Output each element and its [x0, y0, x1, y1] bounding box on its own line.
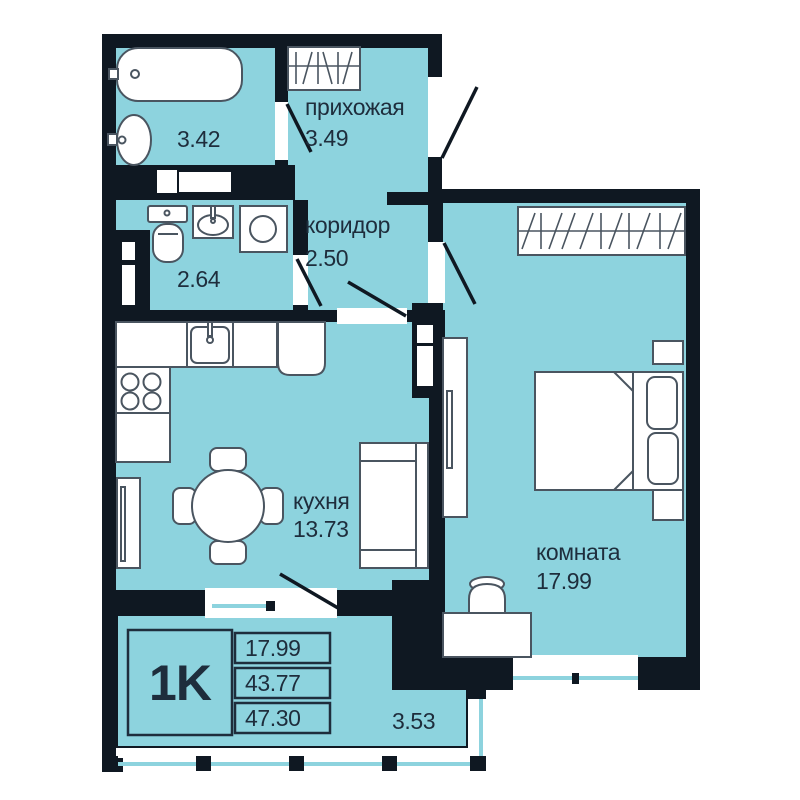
- kitchen-radiator: [117, 478, 140, 568]
- bedroom-area: 17.99: [536, 568, 592, 594]
- chair: [210, 541, 246, 564]
- toilet: [148, 206, 187, 262]
- bedroom-label: комната: [536, 539, 621, 565]
- tv-cabinet: [443, 338, 467, 517]
- hallway-wardrobe: [288, 47, 360, 90]
- legend-type: 1K: [149, 655, 212, 711]
- chair: [210, 448, 246, 471]
- pillow: [647, 377, 677, 429]
- entrance-opening: [428, 77, 442, 157]
- corridor-label: коридор: [305, 212, 390, 238]
- hallway-area: 3.49: [305, 125, 348, 151]
- entrance-door-leaf: [442, 87, 477, 158]
- stove: [116, 367, 170, 413]
- bathtub: [109, 48, 242, 101]
- legend-living-area: 43.77: [245, 670, 301, 696]
- fridge: [278, 322, 325, 375]
- nightstand: [653, 490, 683, 520]
- kitchen-area: 13.73: [293, 516, 349, 542]
- bathroom-door-opening: [275, 102, 288, 160]
- corridor-area: 2.50: [305, 245, 348, 271]
- bed: [535, 372, 683, 490]
- bathroom-area: 3.42: [177, 126, 220, 152]
- desk-chair-seat: [469, 584, 505, 613]
- sofa: [360, 443, 428, 568]
- floor-plan-page: прихожая 3.49 3.42 2.64 коридор 2.50 кух…: [0, 0, 800, 800]
- pillow: [648, 433, 678, 484]
- legend-room-area: 17.99: [245, 635, 301, 661]
- toilet-sink: [193, 206, 233, 238]
- hallway-label: прихожая: [305, 94, 404, 120]
- balcony-area: 3.53: [392, 708, 435, 734]
- nightstand: [653, 341, 683, 364]
- washing-machine: [240, 206, 287, 252]
- kitchen-label: кухня: [293, 488, 349, 514]
- toilet-area: 2.64: [177, 266, 221, 292]
- bedroom-door-opening: [428, 242, 445, 303]
- bedroom-wardrobe: [518, 207, 685, 255]
- floor-plan: прихожая 3.49 3.42 2.64 коридор 2.50 кух…: [0, 0, 800, 800]
- legend-total-area: 47.30: [245, 705, 301, 731]
